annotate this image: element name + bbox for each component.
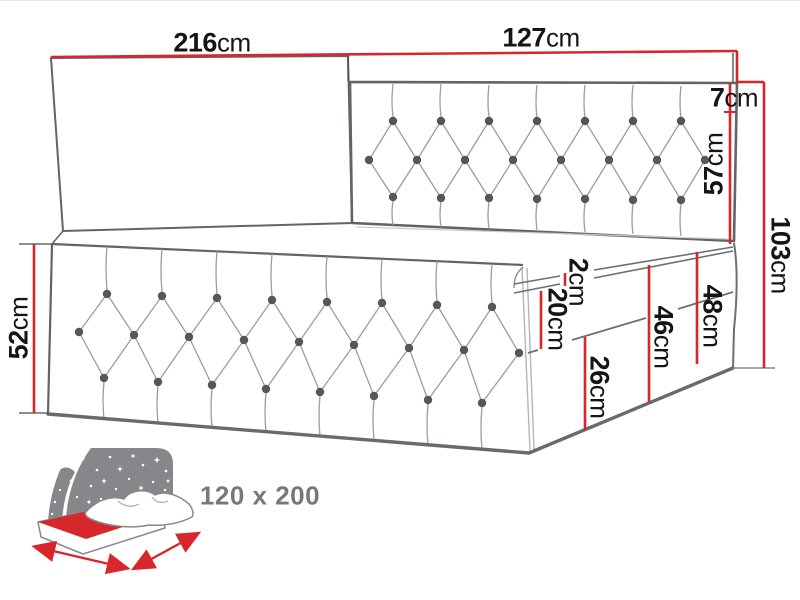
dim-label-side-height: 52cm xyxy=(6,297,33,360)
dim-value: 46 xyxy=(649,306,679,335)
dim-value: 57 xyxy=(699,166,729,195)
dim-label-total-length: 216cm xyxy=(173,30,250,57)
dim-label-mattress-side: 20cm xyxy=(544,288,571,351)
dim-unit: cm xyxy=(217,28,251,58)
dim-label-base-total: 48cm xyxy=(699,285,726,348)
dim-value: 26 xyxy=(585,356,615,385)
dim-unit: cm xyxy=(766,260,796,294)
side-panel xyxy=(48,244,534,453)
bed-dimension-diagram: 216cm 127cm 7cm 57cm 103cm 52cm 2cm 20cm… xyxy=(0,0,800,600)
dim-unit: cm xyxy=(724,83,758,113)
dim-value: 216 xyxy=(173,28,217,58)
dim-unit: cm xyxy=(4,297,34,331)
dim-value: 103 xyxy=(766,216,796,260)
icon-length-arrow xyxy=(135,534,197,568)
dim-value: 2 xyxy=(564,258,594,273)
dim-unit: cm xyxy=(649,335,679,369)
dim-value: 7 xyxy=(710,83,725,113)
dim-label-headboard-top-border: 7cm xyxy=(710,85,758,112)
bed-size-label: 120 x 200 xyxy=(200,481,320,512)
dim-label-headboard-width: 127cm xyxy=(502,25,579,52)
dim-label-base-lower: 26cm xyxy=(586,356,613,419)
dim-unit: cm xyxy=(699,133,729,167)
dim-unit: cm xyxy=(546,23,580,53)
dim-unit: cm xyxy=(698,314,728,348)
dim-label-headboard-height: 57cm xyxy=(701,133,728,196)
dim-value: 52 xyxy=(4,330,34,359)
dim-value: 48 xyxy=(698,285,728,314)
dim-unit: cm xyxy=(543,317,573,351)
dim-label-total-height: 103cm xyxy=(767,216,794,293)
dim-value: 127 xyxy=(502,23,546,53)
dim-unit: cm xyxy=(585,385,615,419)
bed-size-icon xyxy=(36,448,197,568)
diagram-canvas xyxy=(0,1,800,600)
headboard xyxy=(350,82,737,241)
dim-label-base-height: 46cm xyxy=(650,306,677,369)
dim-line-total-length-and-headboard-width xyxy=(51,51,737,57)
mattress-top-surface xyxy=(51,56,352,244)
dim-value: 20 xyxy=(543,288,573,317)
